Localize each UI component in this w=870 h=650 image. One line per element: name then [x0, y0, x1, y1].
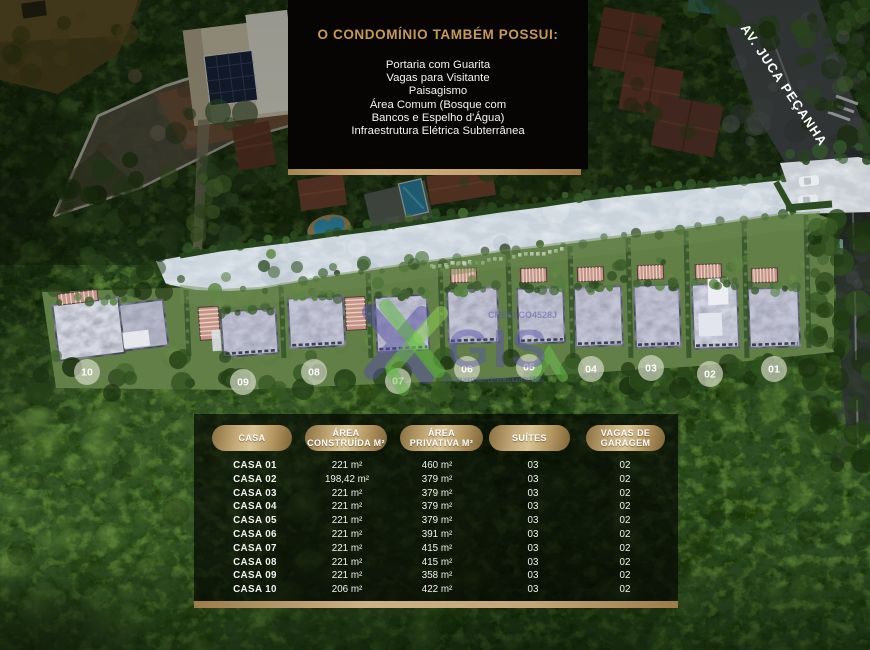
svg-text:de abreu empreendimentos ltda: de abreu empreendimentos ltda imobiliári…: [442, 375, 545, 384]
svg-text:08: 08: [308, 367, 320, 379]
svg-text:GIS: GIS: [447, 319, 547, 379]
svg-text:03: 03: [645, 363, 657, 375]
svg-text:01: 01: [768, 364, 780, 376]
svg-text:10: 10: [81, 367, 93, 379]
svg-text:09: 09: [237, 377, 249, 389]
svg-text:CRECI CO4528J: CRECI CO4528J: [488, 310, 557, 320]
svg-text:02: 02: [704, 369, 716, 381]
